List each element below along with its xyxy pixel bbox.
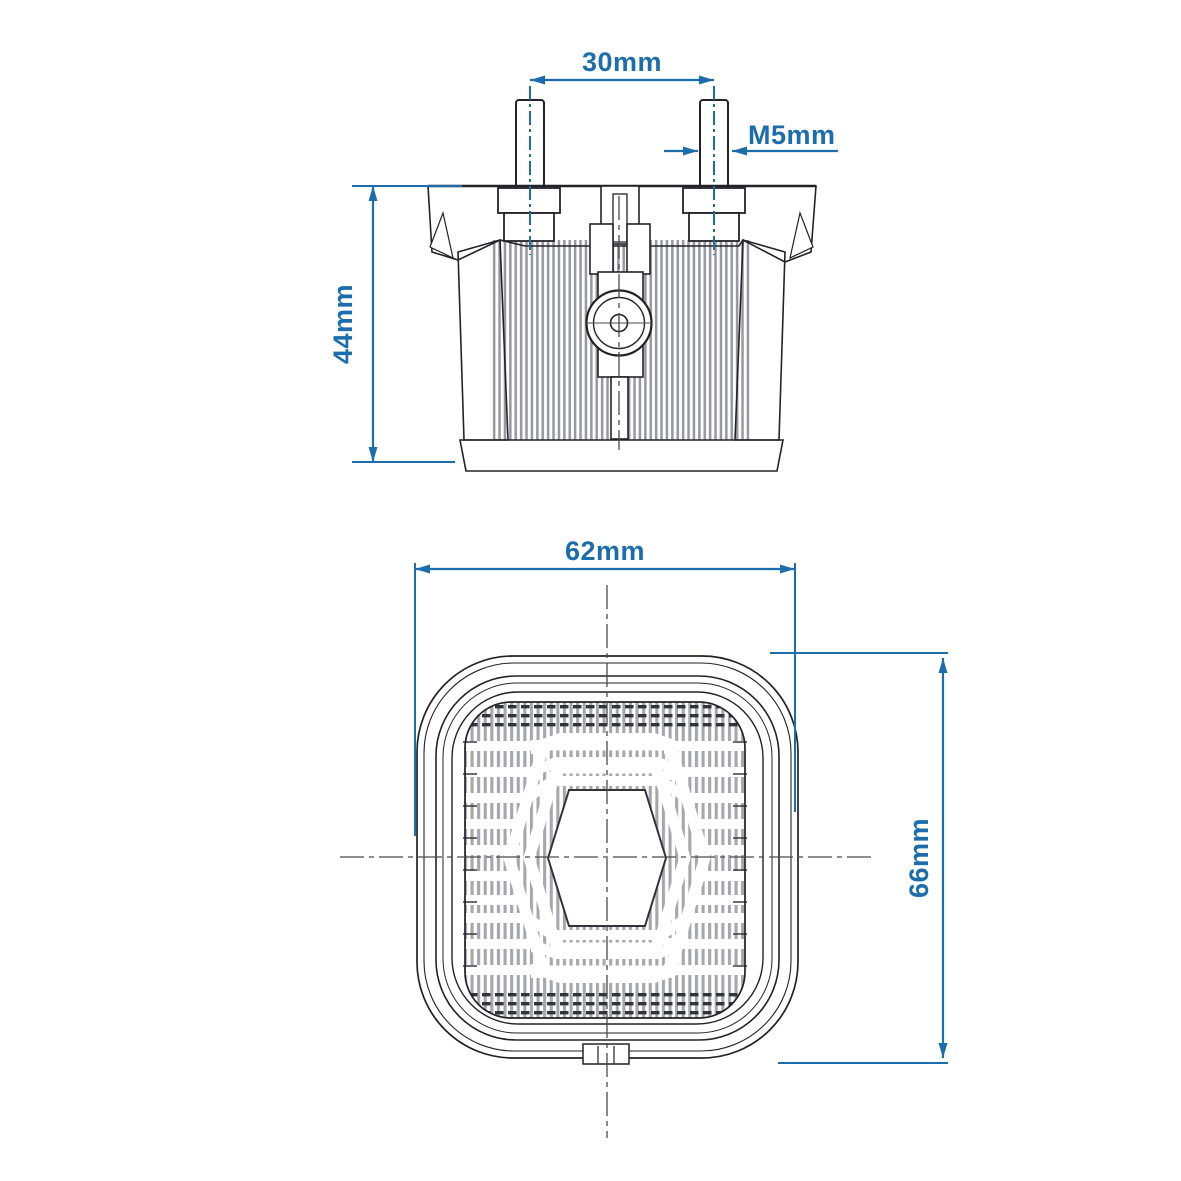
dimension-label-62mm: 62mm (565, 536, 645, 566)
lens-bottom-tab (583, 1044, 629, 1064)
lens-dash-band-bottom (468, 988, 742, 1015)
housing-bottom-plate (460, 440, 783, 471)
flange-notch-left (430, 213, 453, 258)
flange-notch-right (790, 213, 813, 258)
dimension-66mm: 66mm (770, 653, 948, 1063)
dimension-label-44mm: 44mm (328, 284, 358, 364)
technical-drawing-page: 30mm M5mm 44mm 62mm 66mm (0, 0, 1181, 1181)
dimension-label-m5: M5mm (748, 120, 836, 150)
dimension-label-30mm: 30mm (582, 47, 662, 77)
technical-drawing-canvas: 30mm M5mm 44mm 62mm 66mm (0, 0, 1181, 1181)
section-view (428, 100, 816, 471)
dimension-m5: M5mm (664, 120, 838, 151)
lens-dash-band-top (468, 704, 742, 729)
dimension-label-66mm: 66mm (904, 818, 934, 898)
